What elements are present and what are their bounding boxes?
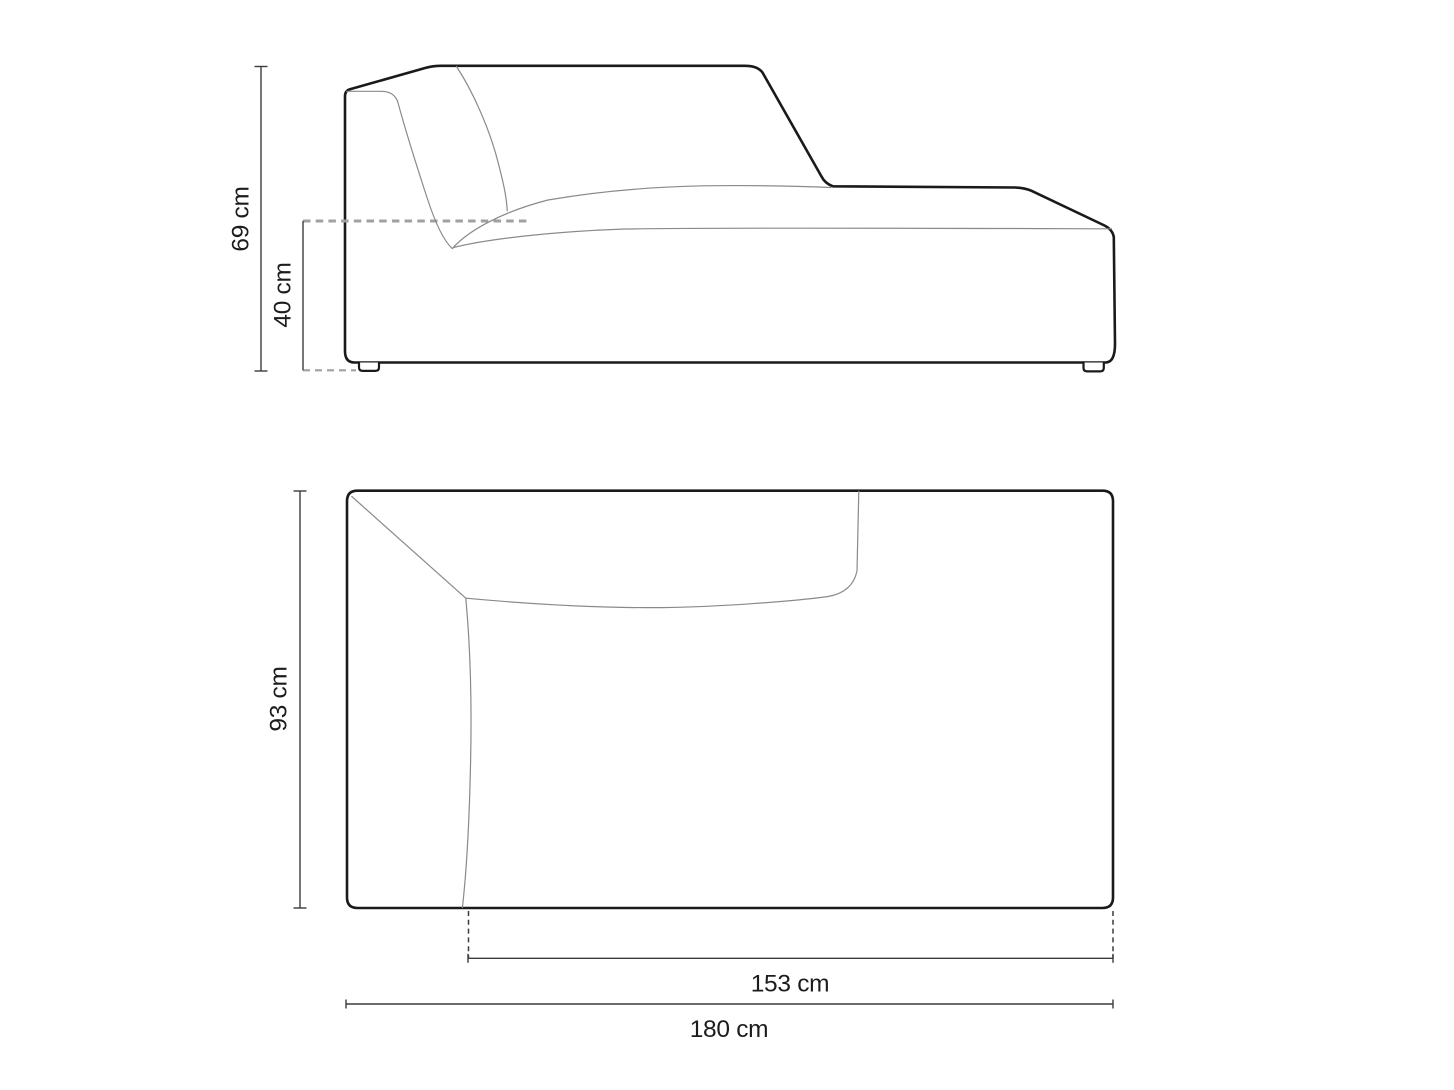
total-height-label: 69 cm <box>228 186 255 251</box>
dim-total-width: 180 cm <box>346 1000 1113 1044</box>
dim-seat-height: 40 cm <box>270 221 304 370</box>
dim-depth: 93 cm <box>266 491 307 908</box>
dim-seat-width: 153 cm <box>468 954 1113 998</box>
right-foot <box>1084 363 1104 372</box>
sofa-dimension-diagram: 69 cm 40 cm 93 cm <box>0 0 1454 1090</box>
seat-width-label: 153 cm <box>751 971 830 998</box>
dim-total-height: 69 cm <box>228 67 268 372</box>
side-view: 69 cm 40 cm <box>228 66 1116 372</box>
total-width-label: 180 cm <box>690 1016 769 1043</box>
seat-height-label: 40 cm <box>270 262 297 327</box>
diagram-svg: 69 cm 40 cm 93 cm <box>0 0 1454 1090</box>
sofa-side-outline <box>345 66 1115 363</box>
sofa-top-outline <box>347 491 1113 908</box>
depth-label: 93 cm <box>266 666 293 731</box>
left-foot <box>359 363 379 371</box>
top-view: 93 cm 153 cm 180 cm <box>266 491 1114 1043</box>
